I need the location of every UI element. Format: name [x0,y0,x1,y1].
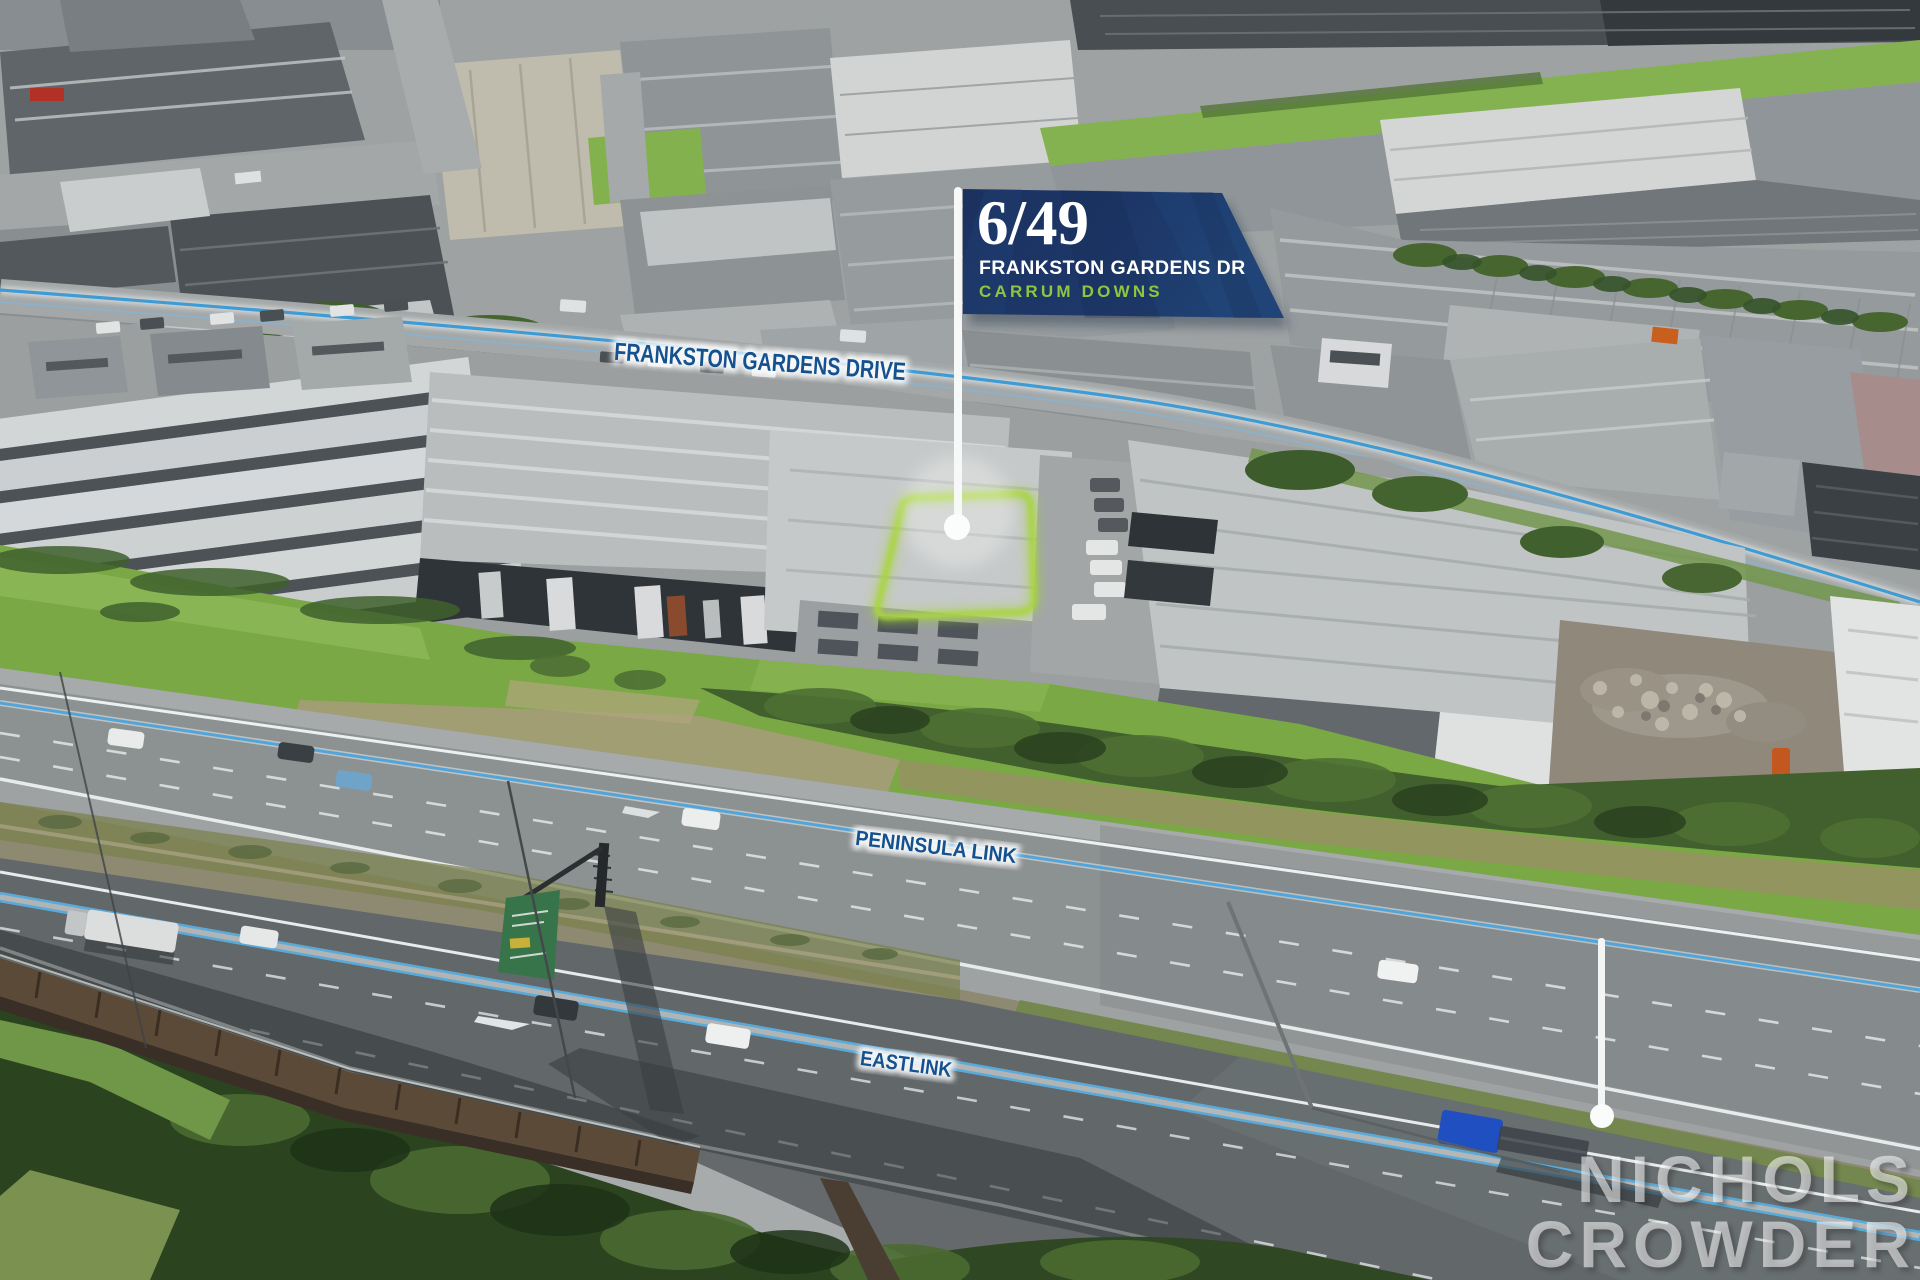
svg-text:CARRUM DOWNS: CARRUM DOWNS [979,282,1163,301]
svg-text:6/49: 6/49 [977,188,1089,258]
svg-text:FRANKSTON GARDENS DR: FRANKSTON GARDENS DR [979,257,1246,279]
svg-text:NICHOLS: NICHOLS [1577,1142,1916,1216]
svg-text:CROWDER: CROWDER [1526,1207,1916,1280]
